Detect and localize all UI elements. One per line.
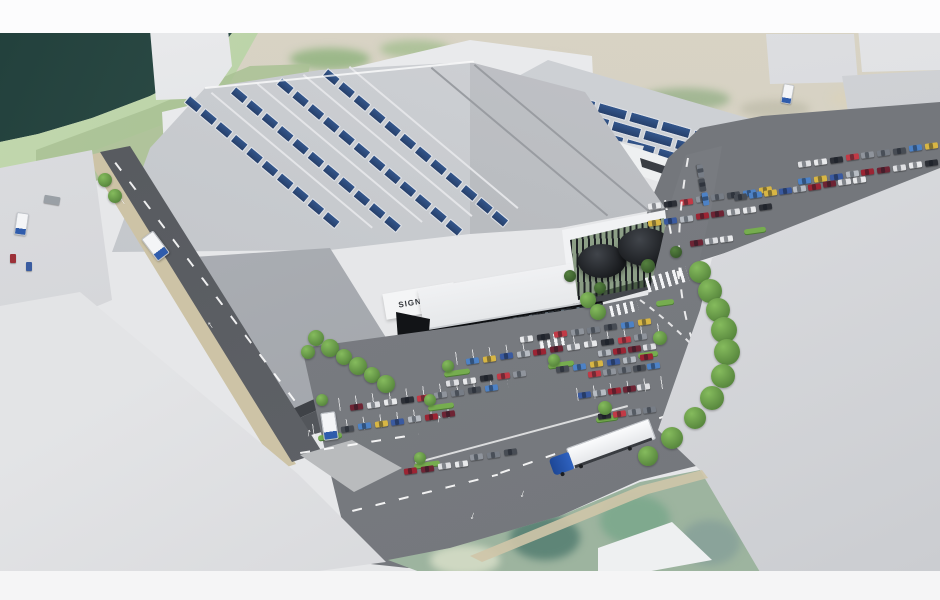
tree (377, 375, 395, 393)
tree (590, 304, 606, 320)
frame-margin-top (0, 0, 940, 33)
tree (108, 189, 122, 203)
tree (598, 401, 612, 415)
tree (653, 331, 667, 345)
tree (714, 339, 740, 365)
tree (98, 173, 112, 187)
tree (594, 282, 606, 294)
tree (641, 259, 655, 273)
tree (548, 354, 560, 366)
tree (301, 345, 315, 359)
tree (442, 360, 454, 372)
tree (684, 407, 706, 429)
tree (424, 394, 436, 406)
tree (564, 270, 576, 282)
tree (638, 446, 658, 466)
tree (316, 394, 328, 406)
tree (414, 452, 426, 464)
aerial-render: SIGNAGE ↑↑↑↑↑↑↑ (0, 0, 940, 600)
frame-margin-bottom (0, 571, 940, 600)
tree (711, 364, 735, 388)
tree (670, 246, 682, 258)
tree (661, 427, 683, 449)
tree (700, 386, 724, 410)
